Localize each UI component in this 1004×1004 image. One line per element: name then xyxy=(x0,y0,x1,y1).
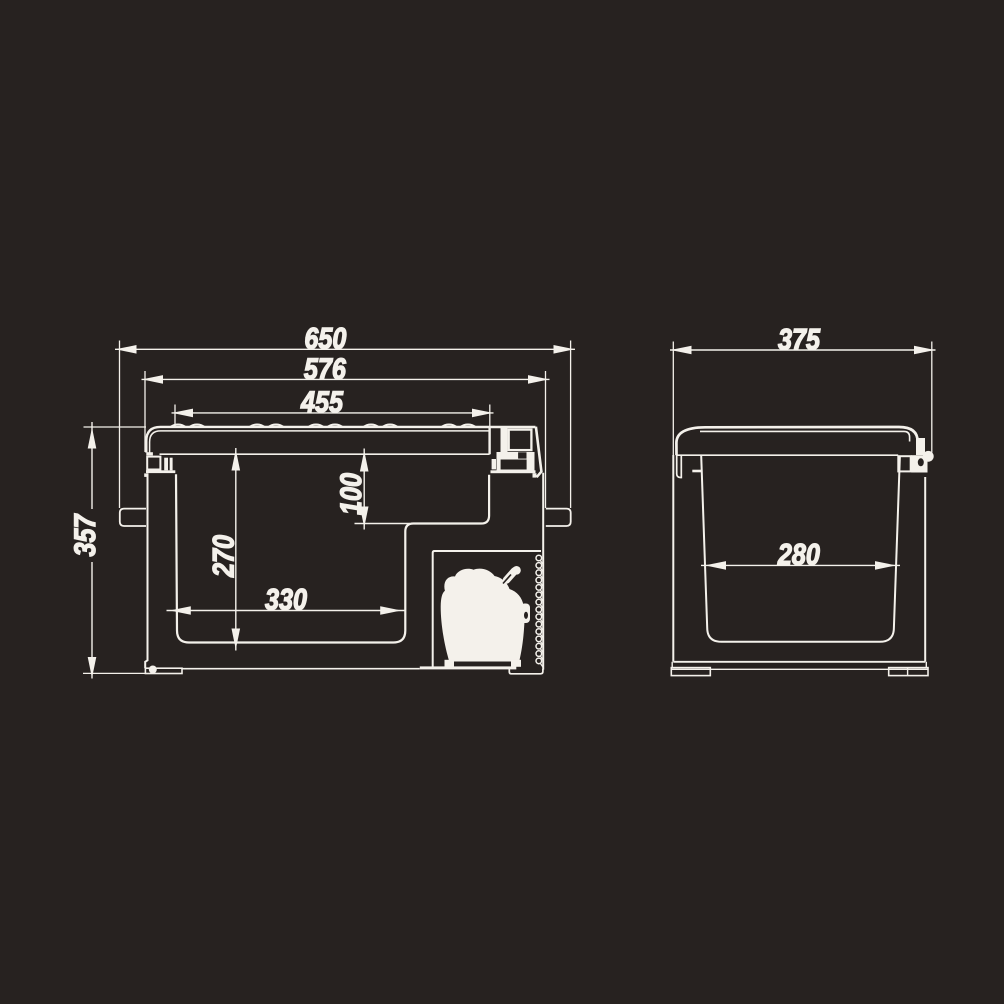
svg-text:357: 357 xyxy=(69,513,102,556)
svg-text:576: 576 xyxy=(304,353,346,386)
svg-text:375: 375 xyxy=(778,323,820,356)
svg-text:100: 100 xyxy=(335,473,368,515)
svg-text:330: 330 xyxy=(265,584,307,617)
svg-text:270: 270 xyxy=(208,535,241,578)
svg-text:455: 455 xyxy=(300,386,343,419)
svg-text:280: 280 xyxy=(777,539,820,572)
svg-text:650: 650 xyxy=(304,323,346,356)
